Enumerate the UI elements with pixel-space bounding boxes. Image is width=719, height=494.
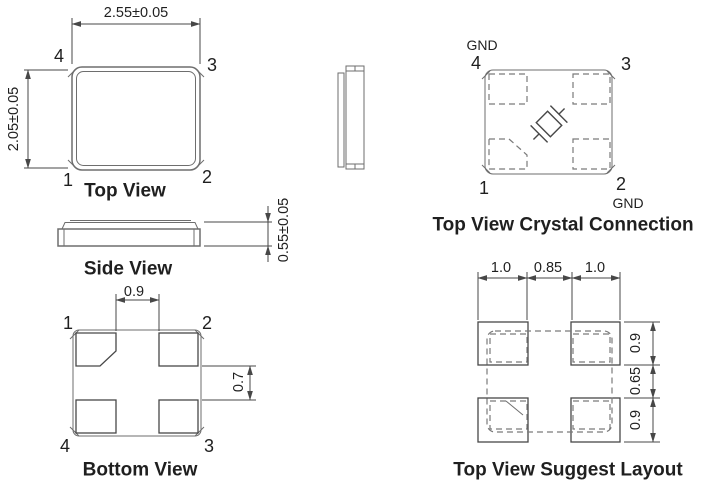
bottom-view-title: Bottom View [83, 461, 198, 480]
side-view-height-dimension [204, 206, 272, 262]
crystal-pin-3: 3 [621, 55, 631, 73]
top-view-pin-1: 1 [63, 171, 73, 189]
land-pad-tr [571, 322, 620, 365]
end-view-body [338, 66, 364, 169]
top-view-width-dim-label: 2.55±0.05 [104, 6, 168, 21]
layout-dim-right-middle-label: 0.65 [629, 367, 644, 395]
bottom-pad-1-chamfered [76, 333, 116, 366]
side-view-title: Side View [84, 260, 172, 279]
package-drawing-sheet: 2.55±0.05 2.05±0.05 4 3 1 2 Top View Sid… [0, 0, 719, 494]
crystal-pad-4 [489, 74, 527, 104]
layout-dim-right-top-label: 0.9 [629, 333, 644, 353]
bottom-view-gap-y-dimension [202, 366, 256, 400]
layout-dim-top-right-label: 1.0 [585, 261, 605, 276]
side-view-height-dim-label: 0.55±0.05 [277, 198, 292, 262]
bottom-view-gap-y-label: 0.7 [232, 372, 247, 392]
suggest-layout-title: Top View Suggest Layout [453, 461, 682, 480]
drawing-linework [0, 0, 719, 494]
layout-dim-top-center-label: 0.85 [534, 261, 562, 276]
crystal-gnd-bottom-label: GND [612, 196, 643, 210]
crystal-connection-title: Top View Crystal Connection [432, 216, 693, 235]
top-view-pin-4: 4 [54, 47, 64, 65]
crystal-symbol [525, 100, 573, 148]
top-view-pin-2: 2 [202, 168, 212, 186]
bottom-view-body [70, 330, 204, 436]
suggest-layout-body [478, 322, 620, 442]
package-footprint-outline [487, 331, 612, 432]
top-view-height-dimension [24, 70, 68, 168]
crystal-connection-body [482, 70, 615, 174]
bottom-pad-3 [159, 400, 198, 433]
suggest-layout-top-dimensions [478, 272, 620, 320]
top-view-width-dimension [72, 18, 200, 64]
layout-dim-right-bottom-label: 0.9 [629, 410, 644, 430]
crystal-pin-2: 2 [616, 175, 626, 193]
crystal-pad-2 [573, 139, 610, 169]
bottom-view-pin-3: 3 [204, 437, 214, 455]
bottom-pad-2 [159, 333, 198, 366]
bottom-view-pin-2: 2 [202, 314, 212, 332]
side-view-body [58, 221, 200, 247]
land-pad-bl [478, 398, 528, 442]
crystal-pad-1-chamfered [489, 139, 527, 169]
bottom-view-gap-x-label: 0.9 [124, 285, 144, 300]
layout-dim-top-left-label: 1.0 [491, 261, 511, 276]
crystal-pad-3 [573, 74, 610, 104]
crystal-pin-4: 4 [471, 54, 481, 72]
land-pad-tl [478, 322, 528, 365]
bottom-pad-4 [76, 400, 116, 433]
top-view-pin-3: 3 [207, 56, 217, 74]
bottom-view-pin-1: 1 [63, 314, 73, 332]
top-view-title: Top View [84, 182, 166, 201]
top-view-body [68, 67, 204, 170]
land-pad-br [571, 398, 620, 442]
crystal-pin-1: 1 [479, 179, 489, 197]
top-view-height-dim-label: 2.05±0.05 [7, 87, 22, 151]
bottom-view-pin-4: 4 [60, 437, 70, 455]
crystal-gnd-top-label: GND [466, 38, 497, 52]
